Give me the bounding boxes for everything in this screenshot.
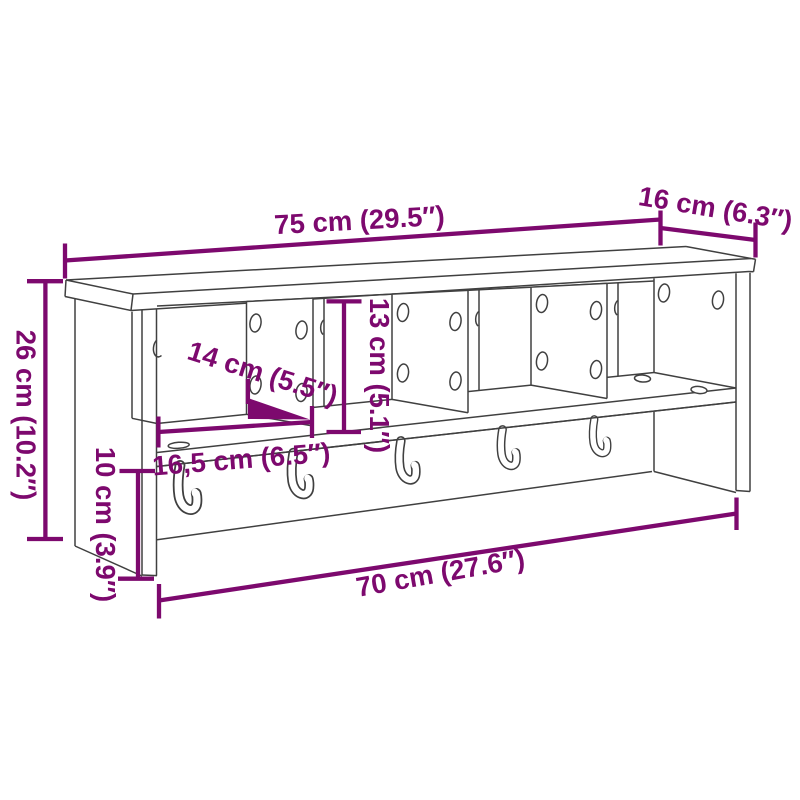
svg-text:13 cm (5.1″): 13 cm (5.1″) (364, 298, 395, 453)
svg-text:26 cm (10.2″): 26 cm (10.2″) (11, 330, 42, 501)
svg-text:10 cm (3.9″): 10 cm (3.9″) (90, 447, 121, 602)
